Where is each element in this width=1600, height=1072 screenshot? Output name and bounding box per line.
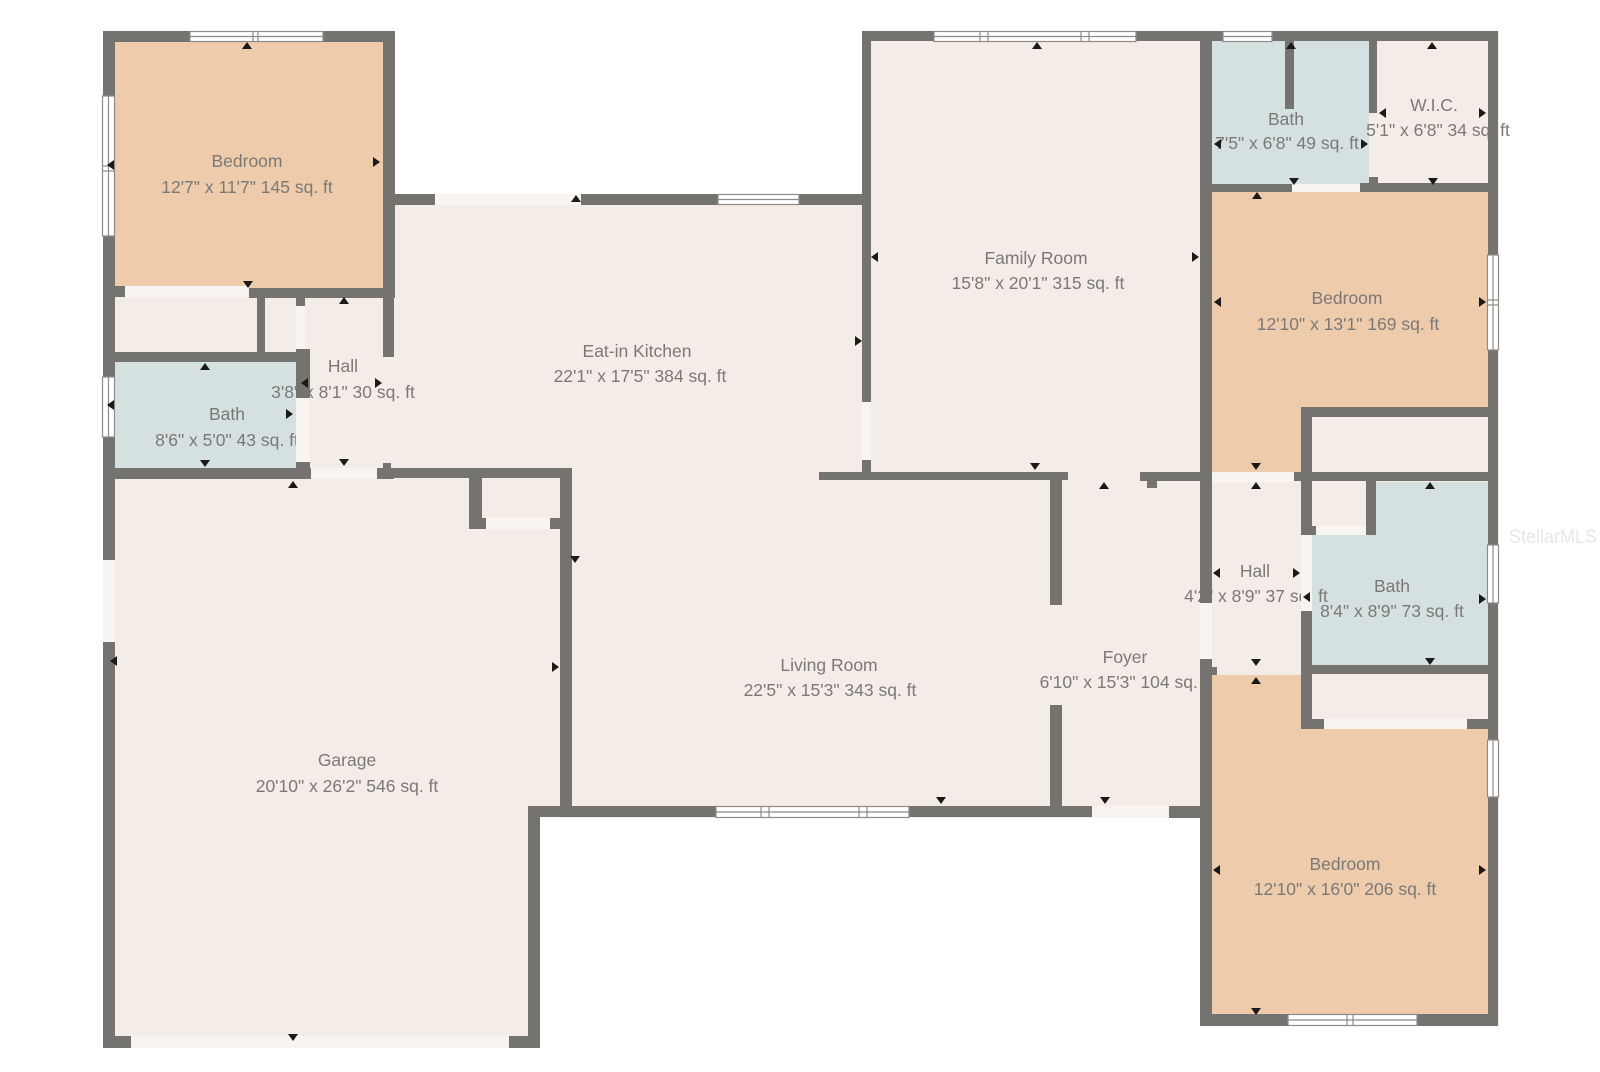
svg-text:Bedroom: Bedroom	[1311, 288, 1382, 308]
svg-text:Bedroom: Bedroom	[211, 151, 282, 171]
svg-text:Hall: Hall	[1240, 561, 1270, 581]
svg-text:12'7" x 11'7" 145 sq. ft: 12'7" x 11'7" 145 sq. ft	[161, 177, 333, 197]
svg-text:Bath: Bath	[1268, 109, 1304, 129]
svg-text:12'10" x 13'1" 169 sq. ft: 12'10" x 13'1" 169 sq. ft	[1257, 314, 1440, 334]
svg-text:Living Room: Living Room	[780, 655, 877, 675]
svg-text:15'8" x 20'1" 315 sq. ft: 15'8" x 20'1" 315 sq. ft	[952, 273, 1125, 293]
svg-text:3'8" x 8'1" 30 sq. ft: 3'8" x 8'1" 30 sq. ft	[271, 382, 415, 402]
svg-text:12'10" x 16'0" 206 sq. ft: 12'10" x 16'0" 206 sq. ft	[1254, 879, 1437, 899]
svg-text:Hall: Hall	[328, 356, 358, 376]
svg-text:Foyer: Foyer	[1103, 647, 1148, 667]
svg-text:Bath: Bath	[1374, 576, 1410, 596]
svg-text:Garage: Garage	[318, 750, 376, 770]
svg-text:W.I.C.: W.I.C.	[1410, 95, 1458, 115]
svg-text:Bedroom: Bedroom	[1309, 854, 1380, 874]
svg-text:StellarMLS: StellarMLS	[1509, 526, 1597, 548]
svg-text:Family Room: Family Room	[984, 248, 1087, 268]
svg-text:20'10" x 26'2" 546 sq. ft: 20'10" x 26'2" 546 sq. ft	[256, 776, 439, 796]
svg-text:6'10" x 15'3" 104 sq. ft: 6'10" x 15'3" 104 sq. ft	[1040, 672, 1213, 692]
svg-text:Bath: Bath	[209, 404, 245, 424]
svg-text:8'6" x 5'0" 43 sq. ft: 8'6" x 5'0" 43 sq. ft	[155, 430, 299, 450]
svg-text:7'5" x 6'8" 49 sq. ft: 7'5" x 6'8" 49 sq. ft	[1215, 133, 1359, 153]
svg-text:Eat-in Kitchen: Eat-in Kitchen	[583, 341, 692, 361]
svg-text:22'5" x 15'3" 343 sq. ft: 22'5" x 15'3" 343 sq. ft	[744, 680, 917, 700]
svg-text:8'4" x 8'9" 73 sq. ft: 8'4" x 8'9" 73 sq. ft	[1320, 601, 1464, 621]
svg-text:22'1" x 17'5" 384 sq. ft: 22'1" x 17'5" 384 sq. ft	[554, 366, 727, 386]
